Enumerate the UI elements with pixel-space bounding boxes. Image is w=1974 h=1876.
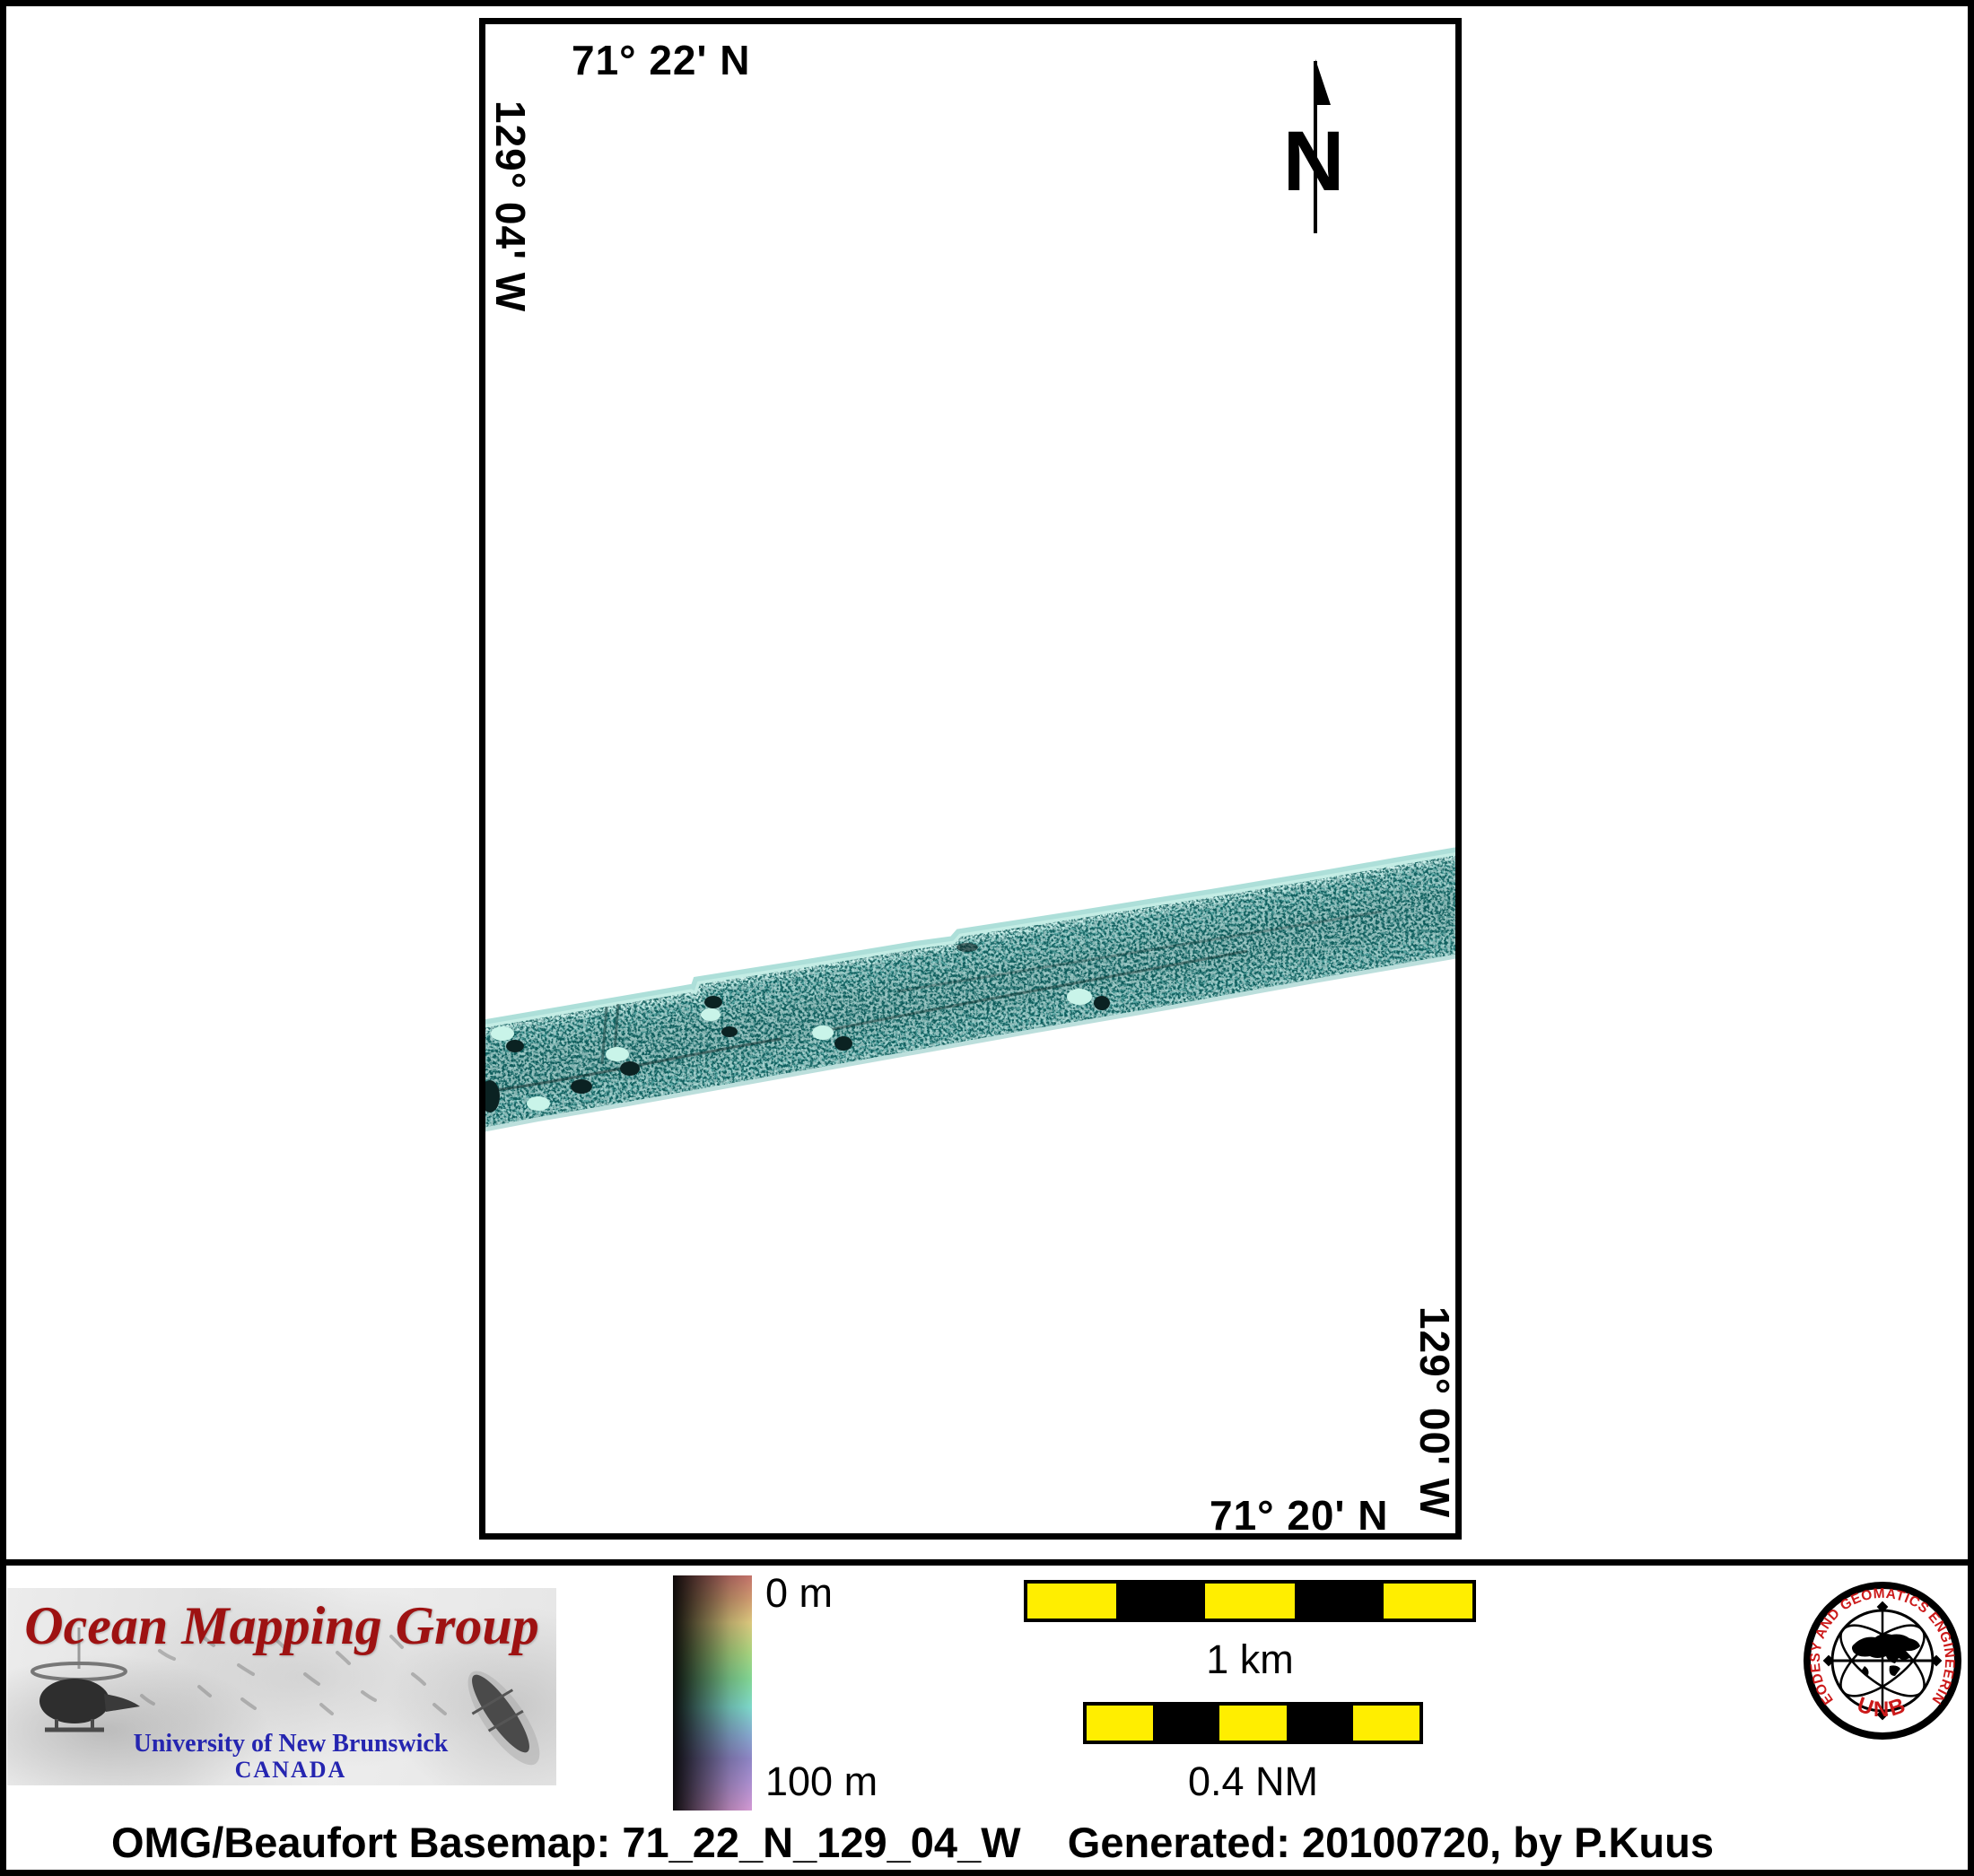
bathymetry-swath	[485, 855, 1455, 1128]
scalebar-segment	[1219, 1706, 1286, 1741]
scalebar-segment	[1384, 1584, 1472, 1619]
scalebar-km	[1024, 1580, 1476, 1622]
depth-label-0m: 0 m	[765, 1570, 833, 1617]
depth-label-100m: 100 m	[765, 1758, 878, 1805]
scalebar-km-label: 1 km	[1024, 1636, 1476, 1683]
north-arrow-flag	[1315, 59, 1331, 105]
coordinate-label-left: 129° 04' W	[486, 100, 535, 312]
scalebar-segment	[1295, 1584, 1384, 1619]
map-canvas: N	[485, 24, 1455, 1533]
scalebar-segment	[1116, 1584, 1205, 1619]
scalebar-segment	[1287, 1706, 1353, 1741]
omg-basemap-page: N 71° 22' N 129° 04' W 129° 00' W 71° 20…	[0, 0, 1974, 1876]
coordinate-label-right: 129° 00' W	[1411, 1306, 1459, 1518]
coordinate-label-bottom: 71° 20' N	[1210, 1491, 1388, 1540]
scalebar-segment	[1027, 1584, 1116, 1619]
omg-logo: Ocean Mapping Group University of New Br…	[7, 1588, 556, 1785]
scalebar-segment	[1205, 1584, 1294, 1619]
scalebar-segment	[1353, 1706, 1419, 1741]
omg-logo-title: Ocean Mapping Group	[7, 1595, 556, 1657]
unb-seal: GEODESY AND GEOMATICS ENGINEERING UNB	[1802, 1580, 1963, 1741]
scalebar-nm	[1083, 1702, 1423, 1744]
depth-colorbar	[673, 1575, 752, 1811]
footer-caption: OMG/Beaufort Basemap: 71_22_N_129_04_W G…	[111, 1818, 1714, 1867]
north-arrow-letter: N	[1283, 114, 1345, 209]
coordinate-label-top: 71° 22' N	[572, 36, 750, 84]
scalebar-segment	[1153, 1706, 1219, 1741]
omg-logo-country: CANADA	[25, 1757, 556, 1784]
swath-speckle-light	[485, 855, 1455, 1128]
scalebar-nm-label: 0.4 NM	[1083, 1758, 1423, 1805]
scalebar-segment	[1087, 1706, 1153, 1741]
panel-divider	[0, 1559, 1974, 1566]
omg-logo-university: University of New Brunswick	[25, 1730, 556, 1758]
seal-landmass	[1852, 1634, 1920, 1676]
north-arrow: N	[1283, 59, 1345, 233]
